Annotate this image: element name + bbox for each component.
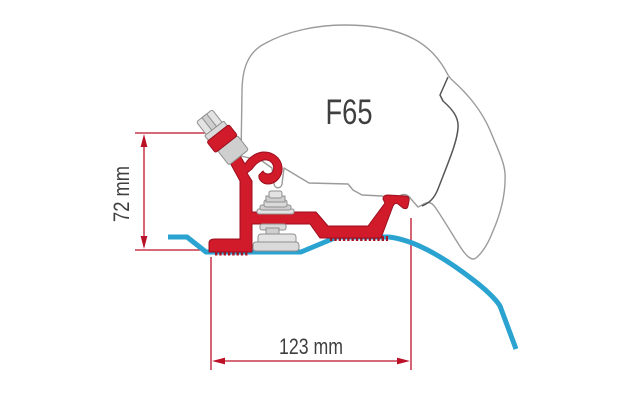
product-label: F65: [326, 93, 373, 132]
arrow-down-icon: [141, 236, 148, 249]
arrow-right-icon: [397, 358, 410, 365]
fixing-knob: [257, 191, 294, 214]
technical-diagram-canvas: F65 72 mm 123 mm: [0, 0, 640, 400]
knob-cap: [269, 191, 282, 198]
roof-clamp: [253, 224, 299, 251]
arrow-up-icon: [141, 134, 148, 147]
width-dimension-label: 123 mm: [279, 334, 343, 359]
clamp-base: [253, 242, 299, 251]
arrow-left-icon: [212, 358, 225, 365]
height-dimension-label: 72 mm: [109, 166, 134, 222]
awning-adapter-diagram: F65 72 mm 123 mm: [0, 0, 640, 400]
